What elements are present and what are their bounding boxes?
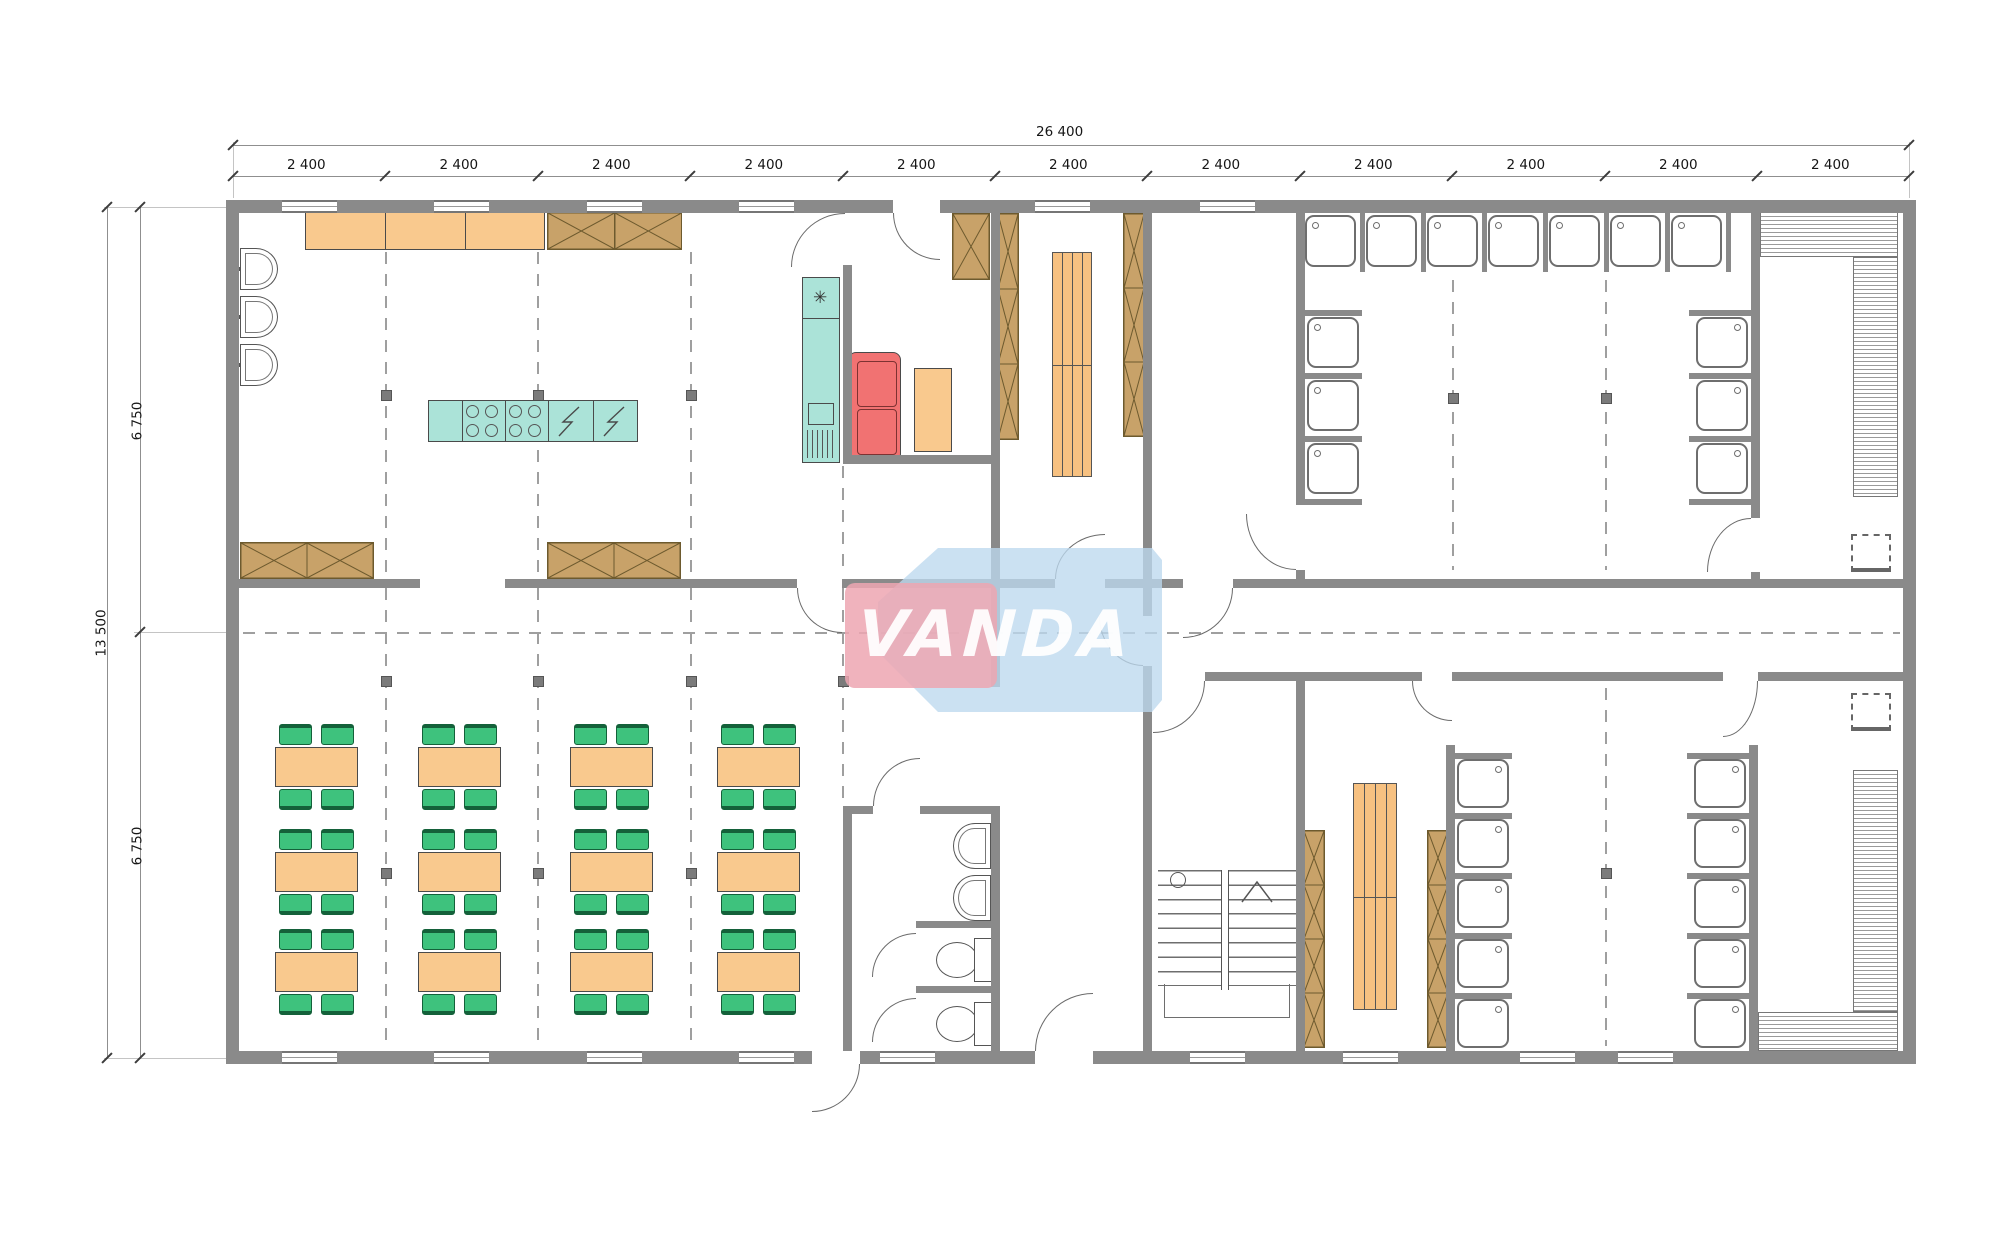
chair	[616, 829, 649, 850]
chair	[721, 724, 754, 745]
burner-icon	[509, 424, 522, 437]
shower-stall	[1610, 215, 1661, 267]
toilet-bowl	[936, 1006, 978, 1042]
door-swing-arc	[893, 213, 940, 260]
shower-stall	[1366, 215, 1417, 267]
drain-icon	[1434, 222, 1441, 229]
dining-table	[570, 852, 653, 892]
chair	[464, 829, 497, 850]
coffee-table	[914, 368, 952, 452]
window	[1520, 1051, 1575, 1064]
window	[587, 1051, 642, 1064]
stair-direction-arrow	[1240, 878, 1274, 906]
cabinet-x-cell	[1304, 993, 1324, 1047]
chair	[616, 724, 649, 745]
chair	[763, 789, 796, 810]
stall-partition	[1604, 213, 1609, 272]
chair	[464, 994, 497, 1015]
dim-label-bay: 2 400	[1354, 157, 1393, 173]
dim-label-bay: 2 400	[1659, 157, 1698, 173]
island-divider	[593, 400, 594, 442]
chair	[616, 994, 649, 1015]
window	[1190, 1051, 1245, 1064]
storage-cabinet	[1303, 830, 1325, 1048]
burner-icon	[466, 424, 479, 437]
chair	[574, 894, 607, 915]
drain-icon	[1732, 766, 1739, 773]
chair	[279, 929, 312, 950]
chair	[721, 789, 754, 810]
wall	[1143, 200, 1152, 579]
drain-icon	[1495, 886, 1502, 893]
wall	[1233, 579, 1903, 588]
door-swing-arc	[872, 933, 916, 977]
wall	[916, 986, 1000, 993]
wall	[920, 806, 1000, 814]
column-marker	[686, 868, 697, 879]
cabinet-x-cell	[953, 214, 989, 279]
drain-icon	[1734, 324, 1741, 331]
stall-partition	[1360, 213, 1365, 272]
drain-icon	[1734, 450, 1741, 457]
door-opening	[1035, 1051, 1093, 1064]
burner-icon	[509, 405, 522, 418]
chair	[422, 994, 455, 1015]
burner-icon	[528, 405, 541, 418]
window	[1200, 200, 1255, 213]
stall-partition	[1305, 499, 1362, 505]
dim-label-bay: 2 400	[287, 157, 326, 173]
chair	[422, 829, 455, 850]
dim-label-bay: 2 400	[745, 157, 784, 173]
chair	[464, 789, 497, 810]
stall-partition	[1726, 213, 1731, 272]
wall	[1205, 672, 1422, 681]
chair	[464, 724, 497, 745]
island-divider	[548, 400, 549, 442]
chair	[279, 724, 312, 745]
drain-icon	[1495, 1006, 1502, 1013]
grid-line	[690, 588, 692, 1046]
chair	[574, 789, 607, 810]
dim-label-half-height: 6 750	[129, 402, 145, 441]
grid-line	[385, 252, 387, 575]
dining-table	[717, 852, 800, 892]
dimension-line-total-width	[233, 145, 1909, 146]
door-opening	[812, 1051, 860, 1064]
drain-icon	[1678, 222, 1685, 229]
cabinet-x-cell	[241, 543, 307, 578]
shelf-rack	[1052, 252, 1092, 477]
dim-label-bay: 2 400	[1049, 157, 1088, 173]
cabinet-x-cell	[548, 213, 615, 249]
burner-icon	[466, 405, 479, 418]
wall	[1903, 200, 1916, 1064]
drain-icon	[1312, 222, 1319, 229]
dim-label-bay: 2 400	[1811, 157, 1850, 173]
sauna-heater	[1851, 534, 1891, 572]
chair	[721, 894, 754, 915]
window	[1618, 1051, 1673, 1064]
shower-stall	[1307, 380, 1359, 431]
stall-partition	[1455, 813, 1512, 819]
column-marker	[1601, 868, 1612, 879]
wall	[1452, 672, 1723, 681]
column-marker	[381, 390, 392, 401]
sauna-bench	[1760, 212, 1898, 257]
dim-label-bay: 2 400	[592, 157, 631, 173]
wall	[1446, 745, 1455, 1064]
shower-stall	[1307, 443, 1359, 494]
dishwasher-icon	[551, 402, 591, 440]
grid-line	[385, 588, 387, 1046]
chair	[763, 994, 796, 1015]
storage-cabinet	[240, 542, 374, 579]
shower-stall	[1307, 317, 1359, 368]
shower-stall	[1488, 215, 1539, 267]
shower-stall	[1696, 380, 1748, 431]
dining-table	[418, 952, 501, 992]
storage-cabinet	[952, 213, 990, 280]
chair	[616, 789, 649, 810]
stall-partition	[1687, 993, 1749, 999]
door-swing-arc	[1246, 514, 1296, 570]
stall-partition	[1689, 373, 1751, 379]
window	[1343, 1051, 1398, 1064]
dim-label-bay: 2 400	[440, 157, 479, 173]
chair	[763, 724, 796, 745]
door-swing-arc	[797, 588, 842, 633]
chair	[721, 994, 754, 1015]
stall-partition	[1689, 499, 1751, 505]
drain-icon	[1495, 946, 1502, 953]
wall	[1758, 672, 1903, 681]
dining-table	[275, 852, 358, 892]
chair	[574, 724, 607, 745]
column-marker	[381, 676, 392, 687]
locker-bench	[1353, 783, 1397, 1010]
wall	[843, 455, 1000, 464]
drain-icon	[1556, 222, 1563, 229]
chair	[422, 789, 455, 810]
witness-line	[233, 142, 234, 198]
drain-icon	[1495, 766, 1502, 773]
stall-partition	[1455, 873, 1512, 879]
chair	[422, 894, 455, 915]
stall-partition	[1665, 213, 1670, 272]
dining-table	[275, 747, 358, 787]
stall-partition	[1455, 933, 1512, 939]
storage-cabinet	[547, 542, 681, 579]
chair	[321, 929, 354, 950]
column-marker	[686, 676, 697, 687]
shower-stall	[1457, 999, 1509, 1048]
drain-icon	[1314, 387, 1321, 394]
shower-stall	[1694, 939, 1746, 988]
shower-stall	[1696, 317, 1748, 368]
shower-stall	[1457, 819, 1509, 868]
chair	[321, 789, 354, 810]
sofa-cushion	[857, 409, 897, 455]
wall	[239, 579, 420, 588]
dishwasher-icon	[596, 402, 636, 440]
shower-stall	[1694, 819, 1746, 868]
dining-table	[418, 747, 501, 787]
chair	[321, 894, 354, 915]
witness-line	[104, 1058, 226, 1059]
washbasin	[240, 344, 278, 386]
dim-label-total-width: 26 400	[1036, 124, 1083, 140]
toilet-bowl	[936, 942, 978, 978]
stall-partition	[1482, 213, 1487, 272]
shower-stall	[1694, 879, 1746, 928]
stall-partition	[1689, 310, 1751, 316]
cabinet-x-cell	[998, 364, 1018, 439]
washbasin	[240, 248, 278, 290]
stall-partition	[1687, 753, 1749, 759]
dining-table	[275, 952, 358, 992]
column-marker	[686, 390, 697, 401]
wall	[991, 200, 1000, 579]
door-swing-arc	[1412, 681, 1452, 721]
door-swing-arc	[872, 998, 916, 1042]
dim-label-bay: 2 400	[897, 157, 936, 173]
window	[434, 1051, 489, 1064]
wall	[1296, 200, 1305, 505]
drain-icon	[1314, 450, 1321, 457]
toilet-tank	[974, 1002, 992, 1046]
wall	[505, 579, 797, 588]
window	[880, 1051, 935, 1064]
chair	[616, 894, 649, 915]
column-marker	[381, 868, 392, 879]
chair	[763, 829, 796, 850]
grid-line	[690, 252, 692, 575]
chair	[279, 994, 312, 1015]
stall-partition	[1305, 436, 1362, 442]
stall-partition	[1687, 933, 1749, 939]
column-marker	[1448, 393, 1459, 404]
wall	[1749, 745, 1758, 1064]
drain-icon	[1732, 946, 1739, 953]
window	[434, 200, 489, 213]
column-marker	[1601, 393, 1612, 404]
dining-table	[570, 747, 653, 787]
grid-line	[1605, 280, 1607, 570]
drain-icon	[1373, 222, 1380, 229]
door-swing-arc	[791, 213, 845, 267]
drain-icon	[1495, 222, 1502, 229]
counter-divider	[465, 212, 466, 250]
shower-stall	[1427, 215, 1478, 267]
grid-line	[1605, 688, 1607, 1046]
stall-partition	[1687, 873, 1749, 879]
cabinet-x-cell	[1428, 885, 1448, 939]
cabinet-x-cell	[1428, 993, 1448, 1047]
cabinet-x-cell	[1304, 831, 1324, 885]
wall	[1143, 666, 1152, 1064]
toilet-tank	[974, 938, 992, 982]
wall	[843, 806, 873, 814]
chair	[279, 789, 312, 810]
grid-line	[537, 588, 539, 1046]
floor-plan-canvas: 26 400 13 500 6 750 6 750 ✳	[0, 0, 2000, 1235]
stall-partition	[1455, 753, 1512, 759]
drain-icon	[1732, 826, 1739, 833]
grid-line	[1452, 280, 1454, 570]
chair	[464, 929, 497, 950]
drain-icon	[1734, 387, 1741, 394]
island-divider	[505, 400, 506, 442]
door-swing-arc	[1183, 588, 1233, 638]
chair	[464, 894, 497, 915]
wall	[843, 806, 852, 1064]
stall-partition	[1305, 310, 1362, 316]
stall-partition	[1421, 213, 1426, 272]
wall	[843, 265, 852, 464]
stall-partition	[1689, 436, 1751, 442]
column-marker	[533, 676, 544, 687]
wall	[1296, 672, 1305, 1064]
drain-icon	[1732, 886, 1739, 893]
fridge-compressor	[808, 403, 834, 425]
burner-icon	[528, 424, 541, 437]
sauna-bench	[1853, 770, 1898, 1012]
door-swing-arc	[1723, 681, 1758, 737]
dining-table	[418, 852, 501, 892]
island-divider	[462, 400, 463, 442]
chair	[721, 829, 754, 850]
window	[282, 1051, 337, 1064]
wall	[916, 921, 1000, 928]
sauna-heater	[1851, 693, 1891, 731]
chair	[574, 994, 607, 1015]
window	[282, 200, 337, 213]
cabinet-x-cell	[1428, 831, 1448, 885]
cabinet-x-cell	[1428, 939, 1448, 993]
stall-partition	[1305, 373, 1362, 379]
chair	[321, 829, 354, 850]
kitchen-counter	[305, 212, 545, 250]
chair	[574, 829, 607, 850]
wall	[226, 200, 239, 1064]
cabinet-x-cell	[1124, 362, 1144, 436]
cabinet-x-cell	[614, 543, 680, 578]
cabinet-x-cell	[998, 289, 1018, 364]
stair-start-post	[1170, 872, 1186, 888]
chair	[321, 994, 354, 1015]
drain-icon	[1314, 324, 1321, 331]
shower-stall	[1457, 939, 1509, 988]
burner-icon	[485, 424, 498, 437]
chair	[422, 929, 455, 950]
cabinet-x-cell	[548, 543, 614, 578]
shower-stall	[1694, 999, 1746, 1048]
dim-label-bay: 2 400	[1202, 157, 1241, 173]
shower-stall	[1457, 879, 1509, 928]
cabinet-x-cell	[1124, 288, 1144, 362]
window	[1035, 200, 1090, 213]
shower-stall	[1671, 215, 1722, 267]
dim-label-bay: 2 400	[1507, 157, 1546, 173]
drain-icon	[1617, 222, 1624, 229]
window	[739, 1051, 794, 1064]
chair	[422, 724, 455, 745]
chair	[279, 829, 312, 850]
storage-cabinet	[547, 212, 682, 250]
fridge-grille	[807, 430, 836, 458]
burner-icon	[485, 405, 498, 418]
witness-line	[1909, 142, 1910, 198]
dim-label-total-height: 13 500	[94, 609, 110, 656]
cabinet-x-cell	[615, 213, 682, 249]
stall-partition	[1455, 993, 1512, 999]
witness-line	[104, 207, 226, 208]
sauna-bench	[1853, 257, 1898, 497]
chair	[763, 894, 796, 915]
dim-label-half-height: 6 750	[129, 827, 145, 866]
shower-stall	[1549, 215, 1600, 267]
shower-stall	[1696, 443, 1748, 494]
witness-line	[134, 632, 226, 633]
shower-stall	[1457, 759, 1509, 808]
watermark-text: VANDA	[856, 598, 1136, 672]
cabinet-x-cell	[1304, 939, 1324, 993]
chair	[574, 929, 607, 950]
sauna-bench	[1758, 1012, 1898, 1051]
cabinet-x-cell	[1124, 214, 1144, 288]
door-swing-arc	[1707, 518, 1751, 572]
door-swing-arc	[873, 758, 920, 806]
washbasin	[953, 823, 991, 869]
sofa-cushion	[857, 361, 897, 407]
drain-icon	[1495, 826, 1502, 833]
stall-partition	[1687, 813, 1749, 819]
shower-stall	[1305, 215, 1356, 267]
stair-rail	[1221, 870, 1229, 990]
dimension-line-bays	[233, 176, 1909, 177]
storage-cabinet	[997, 213, 1019, 440]
window	[587, 200, 642, 213]
wall	[991, 806, 1000, 1064]
cabinet-x-cell	[998, 214, 1018, 289]
cabinet-x-cell	[307, 543, 373, 578]
door-swing-arc	[812, 1064, 860, 1112]
counter-divider	[385, 212, 386, 250]
door-swing-arc	[1035, 993, 1093, 1051]
column-marker	[533, 868, 544, 879]
dining-table	[570, 952, 653, 992]
shower-stall	[1694, 759, 1746, 808]
chair	[721, 929, 754, 950]
washbasin	[953, 875, 991, 921]
chair	[763, 929, 796, 950]
fridge-divider	[802, 318, 840, 319]
stall-partition	[1543, 213, 1548, 272]
wall	[1751, 200, 1760, 518]
cabinet-x-cell	[1304, 885, 1324, 939]
drain-icon	[1732, 1006, 1739, 1013]
chair	[321, 724, 354, 745]
chair	[279, 894, 312, 915]
dining-table	[717, 952, 800, 992]
dining-table	[717, 747, 800, 787]
freezer-icon: ✳	[813, 288, 827, 308]
window	[739, 200, 794, 213]
washbasin	[240, 296, 278, 338]
chair	[616, 929, 649, 950]
door-opening	[893, 200, 940, 213]
